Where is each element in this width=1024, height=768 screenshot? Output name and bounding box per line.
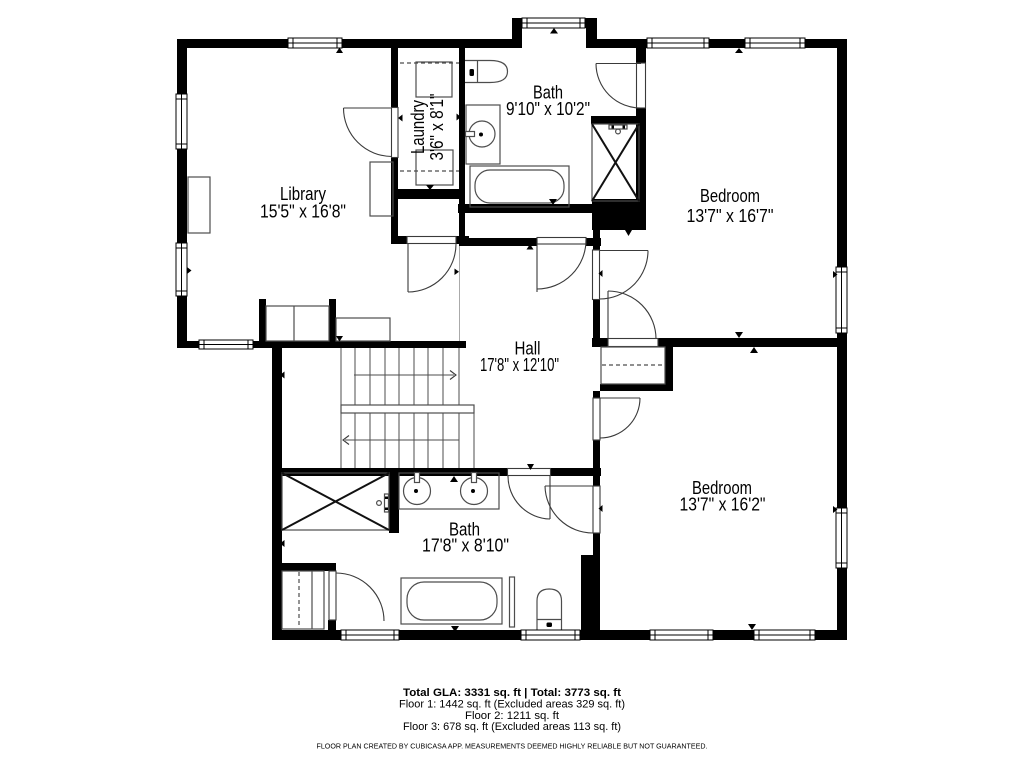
svg-text:Bedroom: Bedroom — [700, 186, 760, 206]
svg-text:17'8" x 12'10": 17'8" x 12'10" — [480, 355, 559, 375]
svg-text:Total GLA: 3331 sq. ft | Total: Total GLA: 3331 sq. ft | Total: 3773 sq.… — [403, 687, 621, 699]
svg-text:9'10" x 10'2": 9'10" x 10'2" — [506, 99, 590, 119]
svg-text:FLOOR PLAN CREATED BY CUBICASA: FLOOR PLAN CREATED BY CUBICASA APP. MEAS… — [317, 744, 708, 751]
svg-text:3'6" x 8'1": 3'6" x 8'1" — [427, 94, 447, 161]
svg-text:Floor 1: 1442 sq. ft (Excluded: Floor 1: 1442 sq. ft (Excluded areas 329… — [399, 699, 625, 711]
svg-text:13'7" x 16'7": 13'7" x 16'7" — [687, 206, 774, 226]
svg-text:Floor 3: 678 sq. ft (Excluded: Floor 3: 678 sq. ft (Excluded areas 113 … — [403, 721, 621, 733]
svg-text:17'8" x 8'10": 17'8" x 8'10" — [422, 536, 509, 556]
svg-text:13'7" x 16'2": 13'7" x 16'2" — [680, 495, 766, 515]
svg-text:15'5" x 16'8": 15'5" x 16'8" — [260, 202, 346, 222]
svg-text:Laundry: Laundry — [408, 100, 428, 154]
